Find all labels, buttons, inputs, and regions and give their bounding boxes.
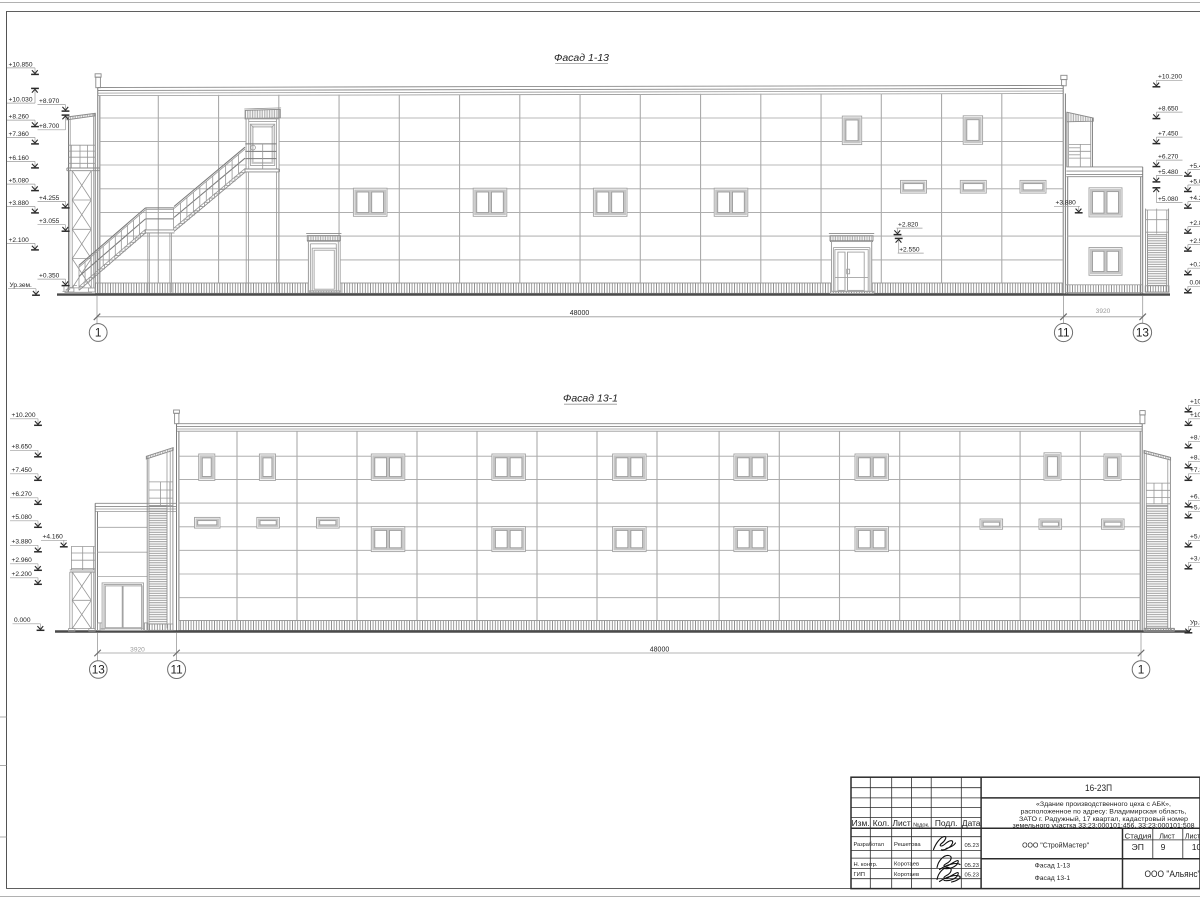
svg-text:Коротаев: Коротаев	[894, 872, 919, 878]
svg-text:1: 1	[1138, 663, 1145, 677]
svg-text:+10.850: +10.850	[1190, 399, 1200, 406]
svg-text:Н. контр.: Н. контр.	[854, 862, 878, 868]
svg-text:05.23: 05.23	[965, 873, 980, 879]
svg-text:+6.270: +6.270	[12, 491, 33, 498]
svg-text:+4.255: +4.255	[39, 195, 60, 202]
svg-text:+5.480: +5.480	[1190, 505, 1200, 512]
svg-text:+5.080: +5.080	[1190, 178, 1200, 185]
svg-text:+8.260: +8.260	[1190, 455, 1200, 462]
svg-text:+7.450: +7.450	[1158, 131, 1179, 138]
svg-text:+8.650: +8.650	[12, 444, 33, 451]
svg-text:ГИП: ГИП	[854, 872, 865, 878]
svg-text:«Здание производственного цеха: «Здание производственного цеха с АБК»,	[1036, 801, 1171, 808]
svg-text:+5.080: +5.080	[1158, 196, 1179, 203]
svg-text:земельного участка 33:23:00010: земельного участка 33:23:000101:456, 33:…	[1013, 822, 1195, 829]
svg-text:Лист: Лист	[1159, 831, 1175, 840]
svg-text:+3.880: +3.880	[9, 200, 30, 207]
svg-text:+7.360: +7.360	[9, 131, 30, 138]
svg-text:+3.880: +3.880	[1056, 200, 1077, 207]
svg-text:ООО "СтройМастер": ООО "СтройМастер"	[1022, 841, 1089, 850]
svg-text:+4.160: +4.160	[43, 534, 64, 541]
svg-text:+2.100: +2.100	[9, 237, 30, 244]
svg-text:+5.080: +5.080	[9, 178, 30, 185]
svg-text:13: 13	[1136, 326, 1150, 340]
svg-text:Решетова: Решетова	[894, 842, 921, 848]
svg-text:+10.850: +10.850	[9, 61, 33, 68]
svg-text:Фасад 13-1: Фасад 13-1	[563, 393, 618, 405]
svg-text:+8.260: +8.260	[9, 114, 30, 121]
svg-text:Листов: Листов	[1185, 831, 1200, 840]
svg-text:+8.970: +8.970	[1190, 435, 1200, 442]
svg-text:+8.650: +8.650	[1158, 106, 1179, 113]
svg-text:+5.480: +5.480	[1158, 169, 1179, 176]
svg-text:+8.970: +8.970	[39, 98, 60, 105]
svg-text:ЭП: ЭП	[1132, 842, 1144, 852]
svg-text:+2.820: +2.820	[1190, 220, 1200, 227]
svg-text:+7.360: +7.360	[1190, 467, 1200, 474]
svg-text:48000: 48000	[570, 310, 590, 317]
svg-text:+10.200: +10.200	[1158, 74, 1182, 81]
svg-text:+5.080: +5.080	[1190, 534, 1200, 541]
svg-text:Коротаев: Коротаев	[894, 862, 919, 868]
svg-text:+3.055: +3.055	[39, 218, 60, 225]
svg-text:10: 10	[1192, 842, 1200, 852]
svg-text:+5.480: +5.480	[1190, 163, 1200, 170]
svg-text:Дата: Дата	[962, 818, 981, 828]
svg-text:9: 9	[1161, 842, 1166, 852]
svg-text:05.23: 05.23	[965, 843, 980, 849]
svg-text:11: 11	[1057, 326, 1069, 340]
svg-text:+0.350: +0.350	[39, 273, 60, 280]
svg-text:+4.255: +4.255	[1190, 195, 1200, 202]
svg-text:+3.055: +3.055	[1190, 556, 1200, 563]
svg-text:+2.200: +2.200	[12, 571, 33, 578]
svg-text:0.000: 0.000	[14, 617, 31, 624]
svg-text:05.23: 05.23	[965, 863, 980, 869]
svg-text:Кол.: Кол.	[873, 818, 890, 828]
svg-text:Фасад 1-13: Фасад 1-13	[554, 52, 609, 64]
svg-text:ООО "Альянс": ООО "Альянс"	[1145, 869, 1200, 880]
svg-text:Разработал: Разработал	[854, 842, 884, 848]
svg-text:+10.030: +10.030	[1190, 412, 1200, 419]
svg-text:+2.960: +2.960	[12, 557, 33, 564]
svg-text:Изм.: Изм.	[852, 818, 870, 828]
svg-text:+10.030: +10.030	[9, 97, 33, 104]
svg-text:+5.080: +5.080	[12, 514, 33, 521]
svg-text:3920: 3920	[130, 646, 145, 653]
svg-text:Лист: Лист	[892, 818, 910, 828]
svg-text:+10.200: +10.200	[12, 412, 36, 419]
svg-text:+2.550: +2.550	[899, 247, 920, 254]
svg-text:+2.820: +2.820	[898, 222, 919, 229]
svg-text:+6.160: +6.160	[1190, 494, 1200, 501]
svg-text:Ур.зем.: Ур.зем.	[10, 282, 33, 289]
svg-text:48000: 48000	[650, 646, 670, 653]
svg-text:3920: 3920	[1096, 308, 1111, 315]
svg-text:Фасад 1-13: Фасад 1-13	[1035, 862, 1071, 869]
svg-text:Фасад 13-1: Фасад 13-1	[1035, 875, 1071, 882]
svg-text:№док.: №док.	[913, 822, 930, 828]
svg-text:+0.350: +0.350	[1190, 262, 1200, 269]
svg-text:Ур.зем.: Ур.зем.	[1190, 620, 1200, 627]
svg-text:+2.550: +2.550	[1190, 238, 1200, 245]
svg-text:+6.270: +6.270	[1158, 154, 1179, 161]
svg-text:расположенное по адресу: Влади: расположенное по адресу: Владимирская об…	[1021, 808, 1187, 816]
svg-text:+8.700: +8.700	[39, 123, 60, 130]
svg-text:+6.160: +6.160	[9, 155, 30, 162]
svg-text:+7.450: +7.450	[12, 467, 33, 474]
svg-text:Стадия: Стадия	[1125, 831, 1152, 840]
svg-text:13: 13	[92, 663, 106, 677]
svg-text:0.000: 0.000	[1190, 280, 1200, 287]
svg-text:16-23П: 16-23П	[1085, 782, 1112, 793]
svg-text:Подл.: Подл.	[935, 818, 958, 828]
svg-text:1: 1	[95, 326, 102, 340]
svg-text:11: 11	[170, 663, 182, 677]
svg-text:+3.880: +3.880	[12, 539, 33, 546]
